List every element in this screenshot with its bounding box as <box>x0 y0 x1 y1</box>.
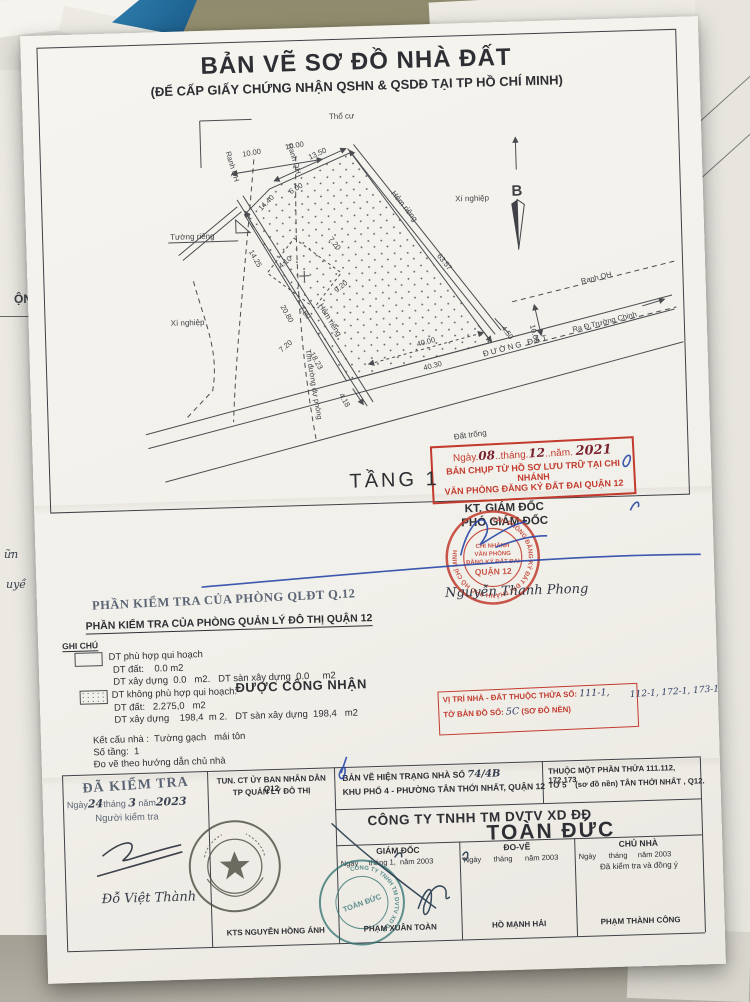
fit-label: DT phù hợp qui hoạch <box>108 649 203 663</box>
dim-label: 4.50 <box>499 324 515 341</box>
archive-copy-stamp: Ngày.08..tháng.12..năm. 2021 BẢN CHỤP TỪ… <box>430 436 637 504</box>
house-number-hand: 74/4B <box>467 768 500 780</box>
document-sheet: BẢN VẼ SƠ ĐỒ NHÀ ĐẤT (ĐỂ CẤP GIẤY CHỨNG … <box>20 16 726 984</box>
survey-title-line2: KHU PHỐ 4 - PHƯỜNG TÂN THỚI NHẤT, QUẬN 1… <box>343 781 546 797</box>
architect-name: KTS NGUYỄN HỒNG ÁNH <box>215 925 337 938</box>
owner-date: Ngày tháng năm 2003 <box>579 849 672 861</box>
date-printed: Ngày <box>67 800 88 811</box>
checked-date-line: Ngày24tháng 3 năm2023 <box>67 794 207 811</box>
stamp-date-printed: Ngày. <box>453 452 479 464</box>
area-label: Xí nghiệp <box>171 318 206 328</box>
desk-scene: { "title": { "main": "BẢN VẼ SƠ ĐỒ NHÀ Đ… <box>0 0 750 1000</box>
stamp-date-printed: ..năm. <box>545 447 573 459</box>
wall-label: Tường riêng <box>170 232 215 242</box>
stamp-date-hand: 12 <box>528 446 545 461</box>
stamp-date-hand: 2021 <box>575 442 612 459</box>
signer-name: Nguyễn Thanh Phong <box>442 582 592 601</box>
dim-label: 10.00 <box>242 147 262 159</box>
structure-line: Kết cấu nhà : Tường gạch mái tôn <box>93 731 246 747</box>
fit-land-area: DT đất: 0.0 m2 <box>113 663 184 676</box>
left-hand-fragment: ữn <box>4 548 18 561</box>
recognized-label: ĐƯỢC CÔNG NHẬN <box>235 676 367 695</box>
stamp-date-hand: 08 <box>478 448 495 463</box>
floors-line: Số tầng: 1 <box>93 746 139 758</box>
dim-label: 20.80 <box>278 303 295 324</box>
stamp-inner-text: CHI NHÁNH <box>475 542 509 550</box>
checker-name: Đỗ Việt Thành <box>102 889 197 907</box>
name-owner: PHẠM THÀNH CÔNG <box>576 914 704 927</box>
owner-note: Đã kiểm tra và đồng ý <box>575 859 703 872</box>
checker-signature <box>96 841 183 876</box>
surveyor-date: Ngày tháng năm 2003 <box>464 853 559 865</box>
location-printed: (SƠ ĐỒ NỀN) <box>521 705 571 716</box>
date-hand: 3 <box>128 796 136 809</box>
inspection-title: PHẦN KIỂM TRA CỦA PHÒNG QUẢN LÝ ĐÔ THỊ Q… <box>85 612 372 635</box>
boundary-label: Ranh QH <box>580 270 613 286</box>
stamp-inner-text: ĐĂNG KÝ ĐẤT ĐAI <box>466 558 520 567</box>
checkbox-unfit <box>80 690 108 705</box>
area-label: Thổ cư <box>329 111 355 121</box>
date-printed: tháng <box>103 798 126 809</box>
north-arrow-line <box>515 138 516 170</box>
pen-mark <box>630 502 639 510</box>
date-hand: 24 <box>88 797 104 810</box>
stamp-inner-text: QUẬN 12 <box>475 565 512 577</box>
left-hand-fragment: uyề <box>6 578 26 591</box>
dim-label: 13.50 <box>307 146 328 162</box>
location-hand: 5C <box>506 706 520 718</box>
inspection-stamp-title: PHẦN KIỂM TRA CỦA PHÒNG QLĐT Q.12 <box>92 586 356 613</box>
checkbox-fit <box>74 652 102 667</box>
emblem-round-stamp <box>185 817 284 916</box>
dim-label: 40.30 <box>422 359 442 372</box>
note-label: GHI CHÚ <box>62 640 98 652</box>
floor-label: TẦNG 1 <box>349 468 440 494</box>
name-surveyor: HỒ MẠNH HẢI <box>462 918 577 930</box>
neighbor-boundary <box>183 281 215 418</box>
checker-label: Người kiểm tra <box>95 812 159 825</box>
location-printed: TỜ BẢN ĐỒ SỐ: <box>443 708 504 720</box>
boundary-label: Ranh QH <box>224 150 242 183</box>
company-stamp-center-text: TOÀN ĐỨC <box>342 892 383 914</box>
location-printed: VỊ TRÍ NHÀ - ĐẤT THUỘC THỬA SỐ: <box>443 689 578 704</box>
compass-needle <box>517 199 525 249</box>
location-hand: 111-1, <box>579 687 610 699</box>
ranh-qh-line <box>226 159 262 422</box>
dim-label: 7.20 <box>277 338 294 354</box>
date-printed: năm <box>138 798 156 809</box>
location-hand-overflow: 112-1, 172-1, 173-1 <box>630 684 725 700</box>
director-signature <box>417 886 450 915</box>
north-label: B <box>511 182 522 199</box>
area-label: Đất trống <box>453 428 487 441</box>
location-stamp: VỊ TRÍ NHÀ - ĐẤT THUỘC THỬA SỐ: 111-1, T… <box>437 683 639 736</box>
stamp-date-printed: ..tháng. <box>495 449 529 462</box>
header-surveyor: ĐO-VẼ <box>459 840 574 853</box>
date-hand: 2023 <box>156 795 187 809</box>
stamp-inner-text: VĂN PHÒNG <box>474 549 511 558</box>
dim-label: 14.25 <box>247 248 264 269</box>
dim-label: 10.00 <box>284 139 304 151</box>
area-label: Xí nghiệp <box>455 193 490 203</box>
dim-label: 4.18 <box>337 391 352 408</box>
unfit-label: DT không phù hợp qui hoạch: <box>112 686 238 701</box>
